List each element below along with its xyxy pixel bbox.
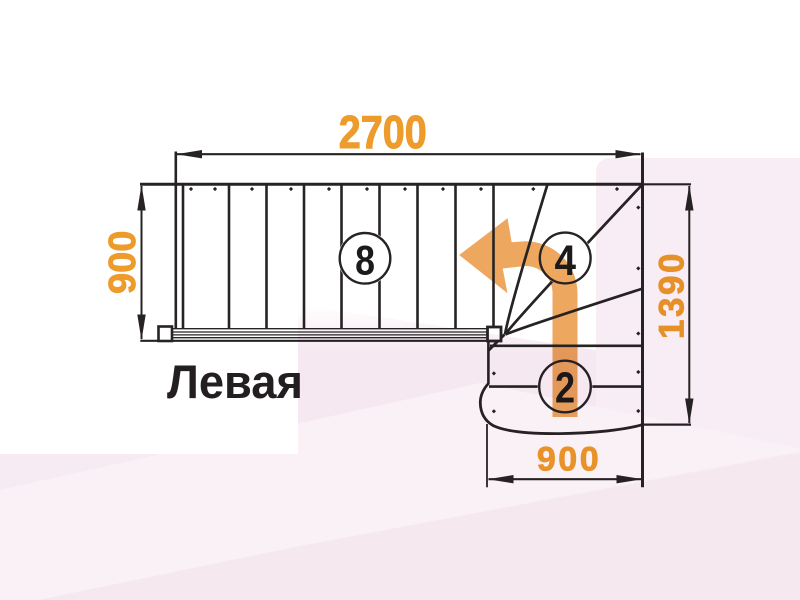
svg-text:8: 8	[355, 238, 375, 284]
svg-text:Левая: Левая	[167, 355, 303, 408]
svg-text:1390: 1390	[653, 251, 692, 339]
svg-text:2: 2	[555, 363, 575, 412]
svg-text:900: 900	[537, 441, 601, 479]
svg-text:2700: 2700	[339, 107, 427, 158]
svg-text:4: 4	[555, 236, 577, 284]
svg-text:900: 900	[102, 231, 144, 294]
